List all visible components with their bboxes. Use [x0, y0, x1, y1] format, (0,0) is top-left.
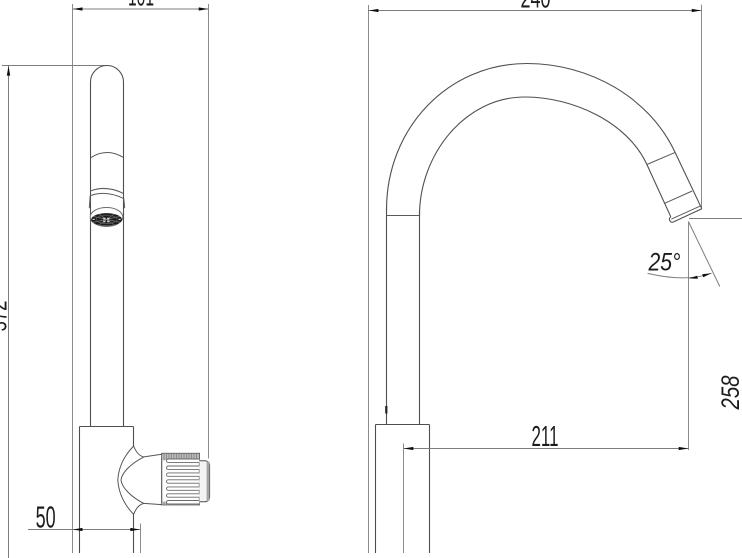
svg-text:258: 258 [717, 375, 742, 410]
svg-text:25°: 25° [648, 249, 681, 277]
svg-text:211: 211 [532, 421, 559, 453]
svg-text:240: 240 [521, 0, 551, 13]
svg-text:50: 50 [36, 499, 56, 534]
svg-text:101: 101 [128, 0, 154, 11]
svg-text:372: 372 [0, 301, 13, 332]
